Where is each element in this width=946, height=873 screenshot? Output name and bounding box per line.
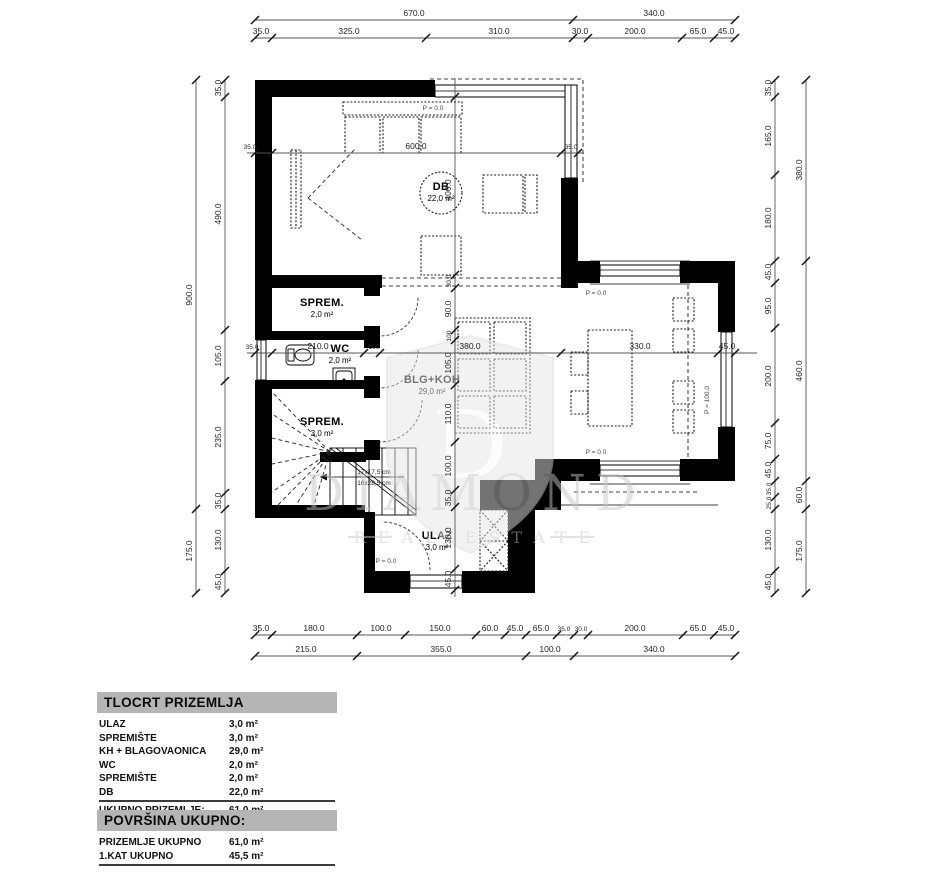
dim-label: 35.0 xyxy=(213,79,223,96)
totals-row: 1.KAT UKUPNO 45,5 m² xyxy=(99,850,335,867)
dim-label: 30.0 xyxy=(572,26,589,36)
legend-row-label: ULAZ xyxy=(99,718,229,732)
dim-label: 215.0 xyxy=(295,644,317,654)
dim-label: 130.0 xyxy=(443,527,453,549)
legend-row-value: 2,0 m² xyxy=(229,759,335,773)
legend-ground-floor: TLOCRT PRIZEMLJA ULAZ 3,0 m² SPREMIŠTE 3… xyxy=(97,692,337,822)
room-area-sprem3: 3,0 m² xyxy=(311,429,334,438)
legend-row: WC 2,0 m² xyxy=(99,759,335,773)
totals-title: POVRŠINA UKUPNO: xyxy=(97,810,337,831)
dim-label: 60.0 xyxy=(482,623,499,633)
legend-row-label: KH + BLAGOVAONICA xyxy=(99,745,229,759)
table xyxy=(483,175,523,213)
dim-label: 110.0 xyxy=(443,403,453,424)
dim-label: 45.0 xyxy=(763,263,773,280)
room-label-circle xyxy=(420,172,462,214)
legend-row-value: 22,0 m² xyxy=(229,786,335,800)
dim-label: 45.0 xyxy=(213,573,223,590)
dim-label: 45.0 xyxy=(718,26,735,36)
dim-label: 35.0 xyxy=(213,492,223,509)
legend-row-label: SPREMIŠTE xyxy=(99,772,229,786)
legend-row-label: SPREMIŠTE xyxy=(99,732,229,746)
dim-label: 25.0 xyxy=(766,496,773,509)
dim-label: 340.0 xyxy=(643,8,665,18)
dim-label: 400.0 xyxy=(443,179,453,201)
legend-row: SPREMIŠTE 2,0 m² xyxy=(99,772,335,786)
dim-label: 105.0 xyxy=(443,352,453,374)
legend-row-value: 29,0 m² xyxy=(229,745,335,759)
dim-label: 310.0 xyxy=(488,26,510,36)
dim-label: 670.0 xyxy=(403,8,425,18)
legend-row-value: 2,0 m² xyxy=(229,772,335,786)
dim-label: 45.0 xyxy=(719,341,736,351)
dim-label: 35.0 xyxy=(253,623,270,633)
dim-label: 325.0 xyxy=(338,26,360,36)
floor-plan-page: 17x17,5 cm 16x28,5 cm DB 22,0 m² SPREM. … xyxy=(0,0,946,873)
dim-label: 100 xyxy=(446,330,453,341)
dim-label: 35.0 xyxy=(763,79,773,96)
dim-label: 235.0 xyxy=(213,426,223,448)
dim-label: 200.0 xyxy=(763,365,773,387)
dim-label: 490.0 xyxy=(213,203,223,225)
dim-label: 90.0 xyxy=(443,300,453,317)
totals-row-value: 45,5 m² xyxy=(229,850,335,864)
dim-label: 75.0 xyxy=(763,432,773,449)
chair xyxy=(673,329,694,352)
chair xyxy=(571,352,588,375)
level-label: P = 0.0 xyxy=(376,558,397,565)
dim-label: 180.0 xyxy=(303,623,325,633)
room-name-sprem3: SPREM. xyxy=(300,416,344,428)
legend-title: TLOCRT PRIZEMLJA xyxy=(97,692,337,713)
dim-label: 60.0 xyxy=(794,486,804,503)
dim-label: 105.0 xyxy=(213,345,223,367)
dim-label: 460.0 xyxy=(794,360,804,382)
watermark-sub: REAL ESTATE xyxy=(354,528,602,547)
dim-label: 900.0 xyxy=(184,284,194,306)
dim-label: 65.0 xyxy=(690,26,707,36)
level-label: P = 100.0 xyxy=(704,386,711,414)
room-area-wc: 2,0 m² xyxy=(329,356,352,365)
dim-label: 65.0 xyxy=(533,623,550,633)
dim-label: 175.0 xyxy=(794,540,804,562)
dim-label: 30.0 xyxy=(446,274,453,287)
dim-label: 65.0 xyxy=(690,623,707,633)
cabinet xyxy=(345,117,380,153)
cabinet-counter xyxy=(343,102,462,115)
dim-label: 30.0 xyxy=(575,626,588,633)
dim-label: 380.0 xyxy=(794,159,804,181)
chair xyxy=(571,391,588,414)
legend-row-label: DB xyxy=(99,786,229,800)
totals-row-label: PRIZEMLJE UKUPNO xyxy=(99,836,229,850)
dim-label: 600.0 xyxy=(405,141,427,151)
dim-label: 355.0 xyxy=(430,644,452,654)
dim-label: 35.0 xyxy=(558,626,571,633)
dim-label: 45.0 xyxy=(507,623,524,633)
dim-label: 100.0 xyxy=(539,644,561,654)
dim-label: 100.0 xyxy=(443,455,453,477)
dim-label: 35.0 xyxy=(565,144,578,151)
totals-row: PRIZEMLJE UKUPNO 61,0 m² xyxy=(99,836,335,850)
totals-row-value: 61,0 m² xyxy=(229,836,335,850)
dim-label: 200.0 xyxy=(624,623,646,633)
level-label: P = 0.0 xyxy=(423,105,444,112)
chair xyxy=(673,381,694,404)
dim-label: 45.0 xyxy=(443,570,453,587)
dim-label: 35.0 xyxy=(244,144,257,151)
legend-row: SPREMIŠTE 3,0 m² xyxy=(99,732,335,746)
dim-label: 150.0 xyxy=(429,623,451,633)
dim-label: 200.0 xyxy=(624,26,646,36)
dim-label: 210.0 xyxy=(307,341,329,351)
dim-label: 35.0 xyxy=(246,344,259,351)
legend-row-label: WC xyxy=(99,759,229,773)
dining-table xyxy=(588,330,632,426)
door-swing xyxy=(380,298,418,336)
dim-label: 130.0 xyxy=(763,529,773,551)
dim-label: 100.0 xyxy=(370,623,392,633)
dim-label: 95.0 xyxy=(763,297,773,314)
dim-label: 45.0 xyxy=(718,623,735,633)
legend-row: ULAZ 3,0 m² xyxy=(99,718,335,732)
dim-label: 130.0 xyxy=(213,529,223,551)
legend-totals: POVRŠINA UKUPNO: PRIZEMLJE UKUPNO 61,0 m… xyxy=(97,810,337,873)
totals-row-label: 1.KAT UKUPNO xyxy=(99,850,229,864)
dim-label: 45.0 xyxy=(763,461,773,478)
dim-label: 340.0 xyxy=(643,644,665,654)
dim-label: 45.0 xyxy=(763,573,773,590)
level-label: P = 0.0 xyxy=(586,290,607,297)
dim-label: 35.0 xyxy=(766,482,773,495)
chair xyxy=(525,175,537,213)
dim-label: 35.0 xyxy=(253,26,270,36)
level-label: P = 0.0 xyxy=(586,449,607,456)
room-area-sprem2: 2,0 m² xyxy=(311,310,334,319)
room-name-sprem2: SPREM. xyxy=(300,297,344,309)
dim-label: 35.0 xyxy=(443,489,453,506)
legend-row-value: 3,0 m² xyxy=(229,718,335,732)
legend-row-value: 3,0 m² xyxy=(229,732,335,746)
dim-label: 100 xyxy=(369,344,380,351)
dim-label: 175.0 xyxy=(184,540,194,562)
legend-row: DB 22,0 m² xyxy=(99,786,335,803)
dim-label: 180.0 xyxy=(763,207,773,229)
legend-row: KH + BLAGOVAONICA 29,0 m² xyxy=(99,745,335,759)
chair xyxy=(673,298,694,321)
dim-label: 380.0 xyxy=(459,341,481,351)
chair xyxy=(673,410,694,433)
dim-label: 165.0 xyxy=(763,125,773,147)
dim-label: 330.0 xyxy=(629,341,651,351)
watermark-word: DIAMOND xyxy=(304,464,646,522)
